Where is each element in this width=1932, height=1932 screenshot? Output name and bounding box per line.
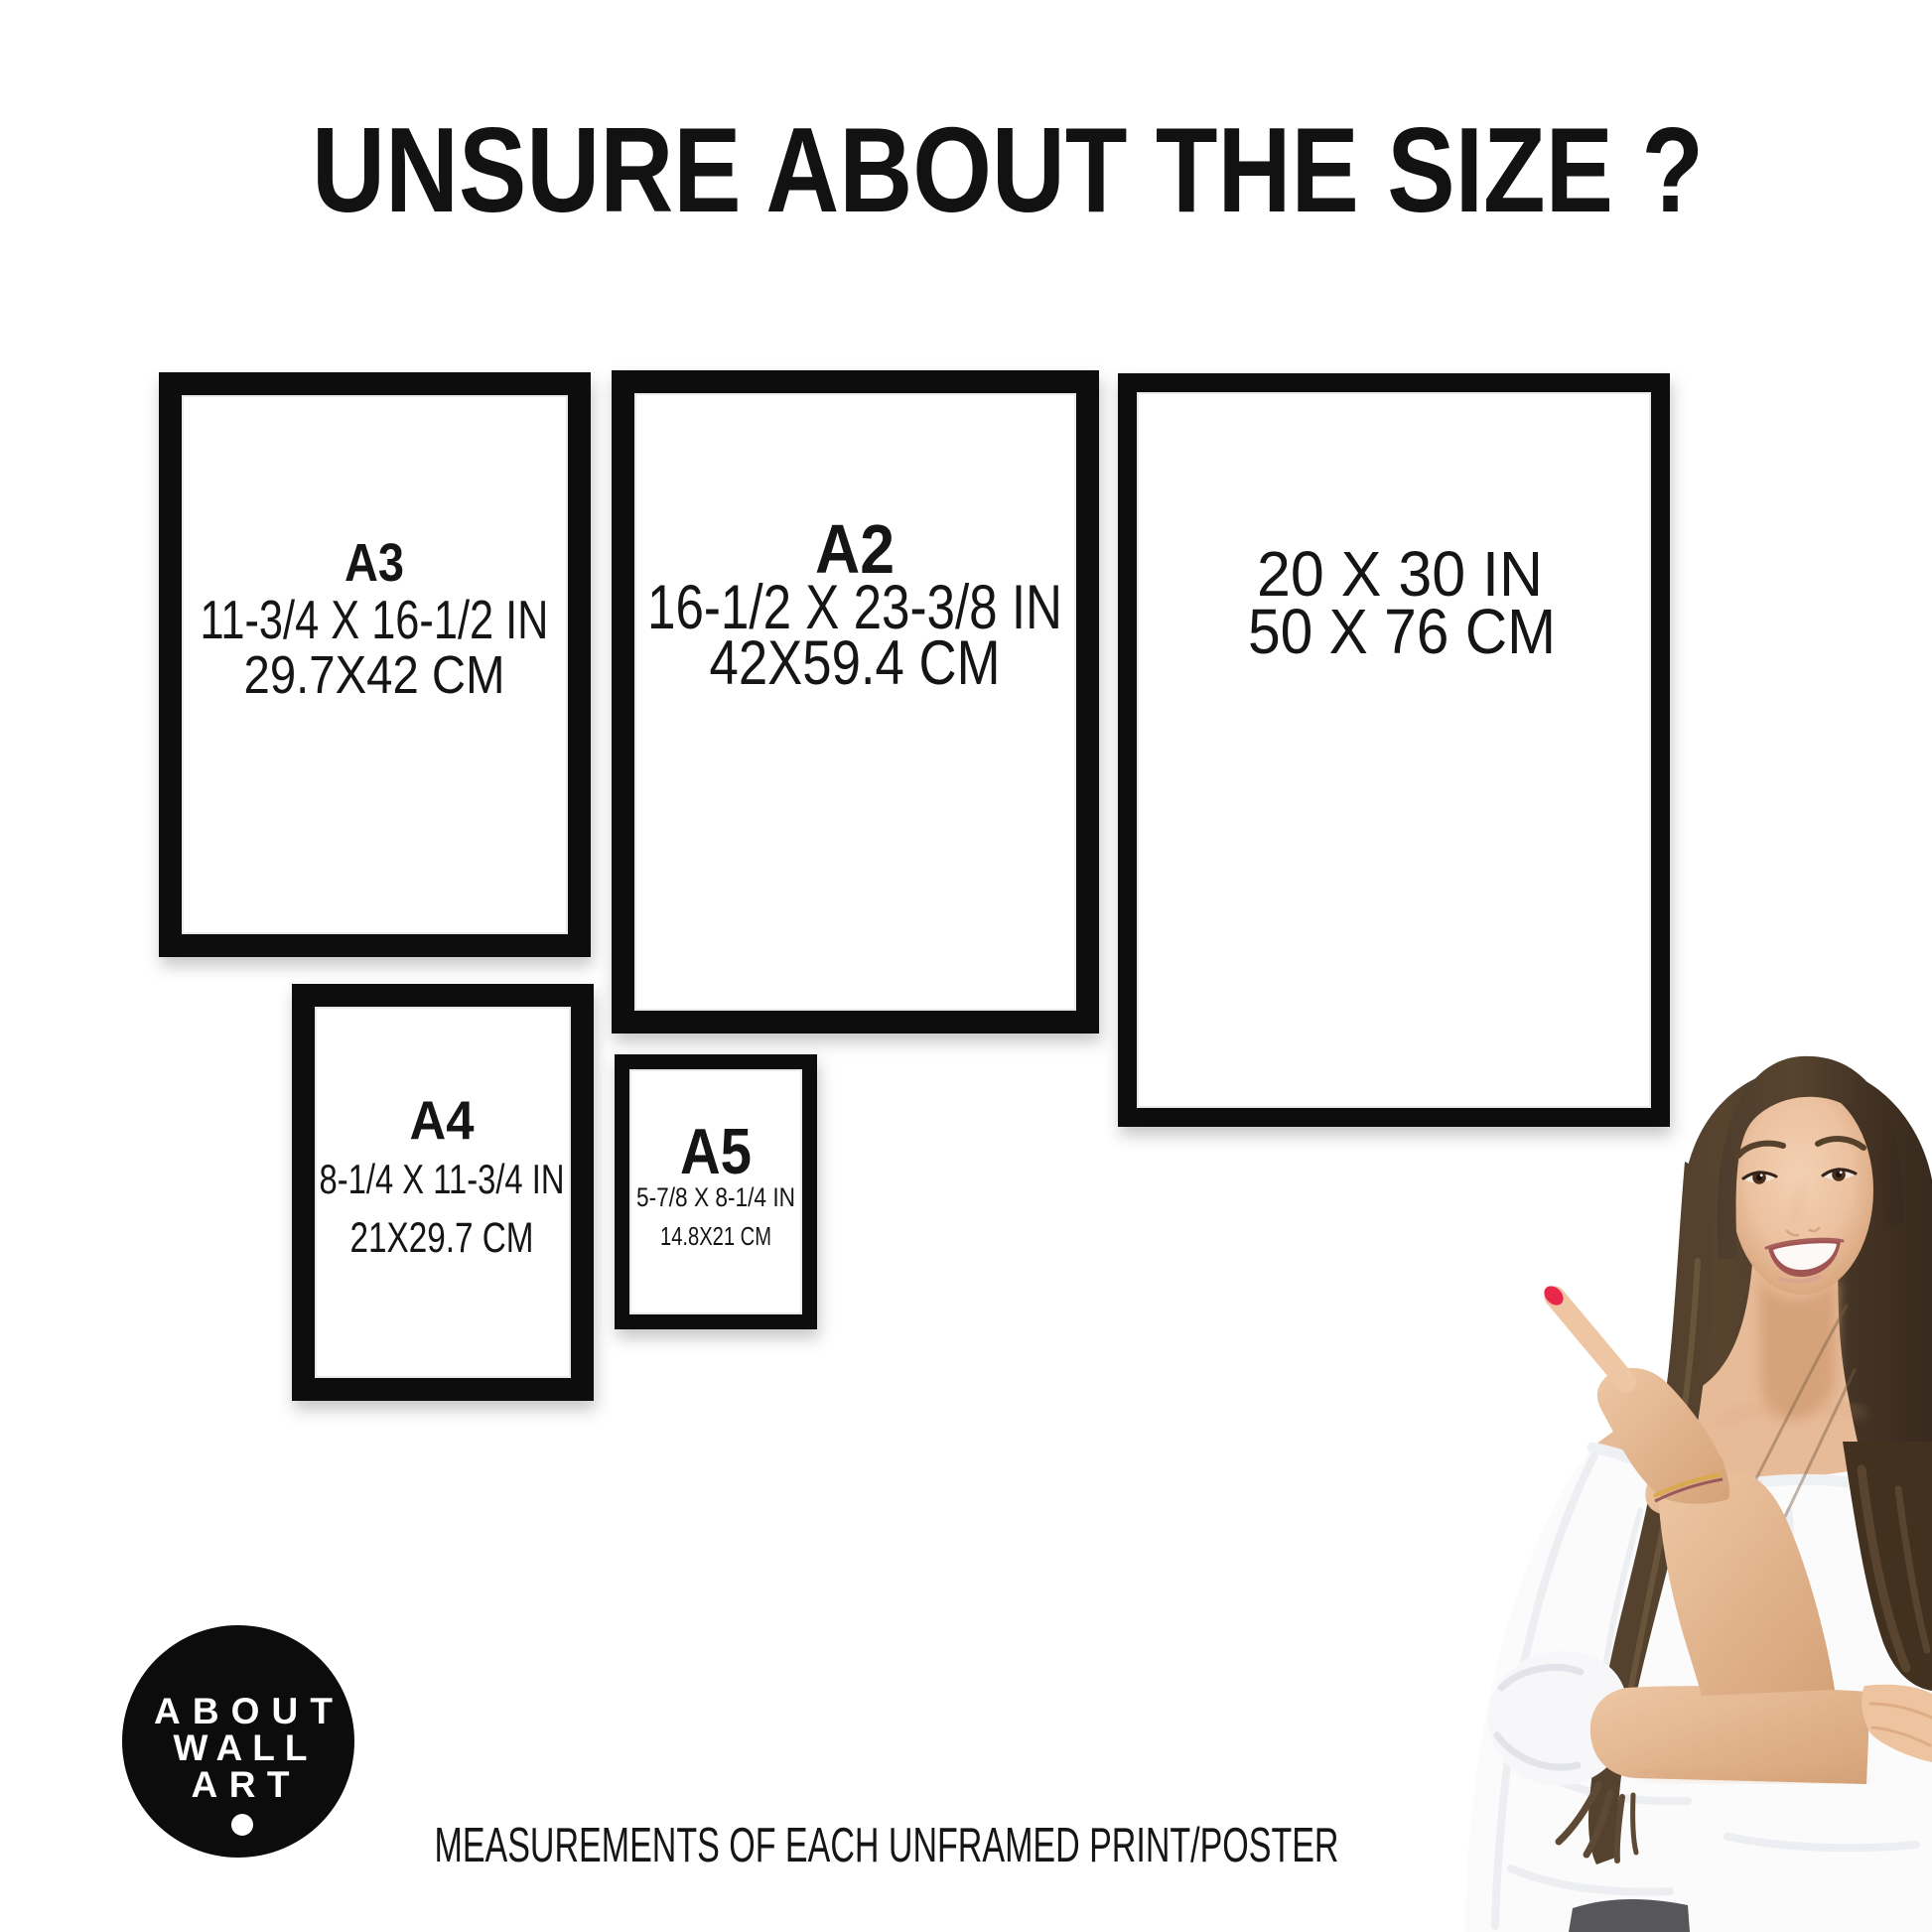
svg-text:5-7/8 X 8-1/4 IN: 5-7/8 X 8-1/4 IN (636, 1182, 795, 1212)
svg-text:UNSURE ABOUT THE SIZE ?: UNSURE ABOUT THE SIZE ? (312, 102, 1704, 237)
svg-text:ART: ART (192, 1764, 290, 1805)
svg-text:50 X 76 CM: 50 X 76 CM (1248, 596, 1556, 667)
svg-text:A5: A5 (680, 1115, 752, 1187)
svg-text:8-1/4 X 11-3/4 IN: 8-1/4 X 11-3/4 IN (320, 1156, 565, 1202)
svg-text:29.7X42 CM: 29.7X42 CM (244, 645, 505, 705)
svg-text:A4: A4 (410, 1089, 475, 1151)
svg-text:11-3/4 X 16-1/2 IN: 11-3/4 X 16-1/2 IN (201, 589, 549, 650)
svg-text:42X59.4 CM: 42X59.4 CM (710, 628, 1001, 698)
svg-text:MEASUREMENTS OF EACH UNFRAMED: MEASUREMENTS OF EACH UNFRAMED PRINT/POST… (435, 1819, 1339, 1872)
svg-text:21X29.7 CM: 21X29.7 CM (350, 1214, 534, 1262)
svg-text:WALL: WALL (174, 1727, 308, 1768)
svg-text:14.8X21 CM: 14.8X21 CM (660, 1221, 771, 1251)
svg-text:A3: A3 (345, 533, 404, 593)
